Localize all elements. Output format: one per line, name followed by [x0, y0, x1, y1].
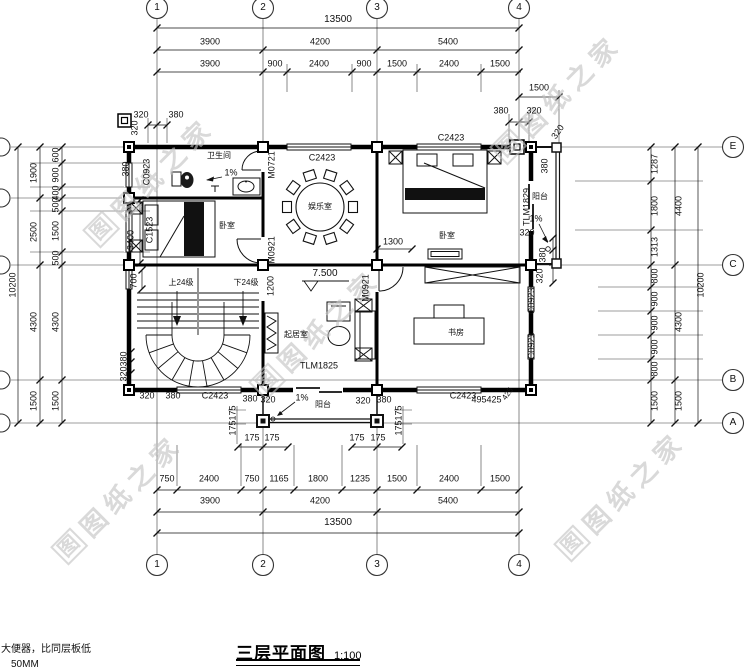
- dim-label: 320: [526, 107, 541, 116]
- dim-label: 425: [486, 396, 501, 405]
- dim-label: 175: [370, 434, 385, 443]
- dim-label: 380: [541, 158, 550, 173]
- grid-bubble-label: 3: [374, 560, 380, 570]
- door-tag: M0921: [268, 236, 277, 264]
- dim-label: 1500: [52, 391, 61, 411]
- dim-label: 900: [651, 291, 660, 306]
- dim-label: 4200: [310, 38, 330, 47]
- dim-label: 380: [376, 396, 391, 405]
- dim-label: 600: [52, 147, 61, 162]
- dim-label: 4400: [675, 196, 684, 216]
- dim-label: 900: [52, 167, 61, 182]
- dim-label: 175: [349, 434, 364, 443]
- dim-label: 1500: [529, 84, 549, 93]
- dim-label: 380: [120, 351, 129, 366]
- room-label-balcony-east: 阳台: [532, 193, 548, 201]
- dim-label: 1500: [30, 391, 39, 411]
- dim-label: 320: [260, 396, 275, 405]
- dim-label: 380: [493, 107, 508, 116]
- dim-label: 1200: [267, 276, 276, 296]
- dim-label: 380: [122, 161, 131, 176]
- grid-bubble-label: A: [730, 418, 737, 428]
- room-label-bathroom: 卫生间: [207, 152, 231, 160]
- dim-label: 1500: [52, 221, 61, 241]
- room-label-bedroom-west: 卧室: [219, 222, 235, 230]
- dim-label: 1800: [651, 196, 660, 216]
- dim-label: 1900: [30, 163, 39, 183]
- dim-label: 3900: [200, 497, 220, 506]
- dim-label: 380: [168, 111, 183, 120]
- dim-label: 1500: [387, 475, 407, 484]
- dim-label: 3900: [200, 60, 220, 69]
- dim-label: 900: [267, 60, 282, 69]
- dim-label: 900: [651, 339, 660, 354]
- toilet-icon: [181, 172, 194, 188]
- dim-label: 320: [131, 120, 140, 135]
- door-tag: M0921: [362, 274, 371, 302]
- grid-bubble-label: 4: [516, 3, 522, 13]
- dim-label: 2400: [439, 475, 459, 484]
- slope-label: 1%: [295, 394, 308, 403]
- door-tag: TLM1825: [300, 362, 338, 371]
- dim-label: 750: [244, 475, 259, 484]
- dim-label: 1287: [651, 154, 660, 174]
- grid-bubble-label: 3: [374, 3, 380, 13]
- window-tag: C2423: [450, 392, 477, 401]
- dim-label: 320: [536, 268, 545, 283]
- dim-overall-left: 10200: [9, 272, 18, 297]
- dim-label: 1500: [490, 475, 510, 484]
- window-tag: C2423: [202, 392, 229, 401]
- dim-label: 175: [395, 405, 404, 420]
- dim-label: 175: [264, 434, 279, 443]
- dim-label: 900: [356, 60, 371, 69]
- dim-label: 175: [229, 405, 238, 420]
- dim-label: 500: [52, 250, 61, 265]
- dim-label: 900: [651, 315, 660, 330]
- room-label-bedroom-east: 卧室: [439, 232, 455, 240]
- dim-label: 4300: [52, 312, 61, 332]
- dim-overall-right: 10200: [697, 272, 706, 297]
- grid-bubble-label: 1: [154, 560, 160, 570]
- slope-label: 1%: [224, 169, 237, 178]
- room-label-living: 起居室: [284, 331, 308, 339]
- study-desk: [414, 267, 520, 344]
- room-label-recreation: 娱乐室: [308, 203, 332, 211]
- dim-label: 1500: [490, 60, 510, 69]
- dim-label: 175: [244, 434, 259, 443]
- dim-label: 2400: [199, 475, 219, 484]
- dim-overall-bottom: 13500: [324, 518, 352, 528]
- room-label-balcony-south: 阳台: [315, 401, 331, 409]
- dim-label: 320: [120, 366, 129, 381]
- dim-label: 1500: [675, 391, 684, 411]
- bathroom-fixtures: [172, 172, 260, 195]
- dim-label: 320: [133, 111, 148, 120]
- dim-label: 800: [651, 361, 660, 376]
- dim-label: 2400: [309, 60, 329, 69]
- door-tag: TLM1829: [523, 188, 532, 226]
- grid-bubble-label: 2: [260, 560, 266, 570]
- dim-label: 2500: [30, 222, 39, 242]
- note-toilet: 大便器，比同层板低: [1, 640, 91, 655]
- note-50mm: 50MM: [11, 659, 39, 669]
- dim-label: 380: [242, 395, 257, 404]
- dim-label: 4300: [675, 312, 684, 332]
- dim-label: 3900: [200, 38, 220, 47]
- dim-label: 1165: [269, 475, 288, 484]
- title-underline: [236, 659, 360, 666]
- dim-label: 1235: [350, 475, 370, 484]
- dim-label: 320: [355, 397, 370, 406]
- window-tag: C2423: [309, 154, 336, 163]
- window-tag: C0923: [528, 333, 537, 360]
- dim-label: 4200: [310, 497, 330, 506]
- dim-label: 320: [139, 392, 154, 401]
- window-tag: C2423: [438, 134, 465, 143]
- dim-label: 700: [130, 273, 139, 288]
- room-label-study: 书房: [448, 329, 464, 337]
- grid-bubble-label: 2: [260, 3, 266, 13]
- dim-label: 380: [539, 247, 548, 262]
- dim-label: 800: [651, 268, 660, 283]
- dim-label: 500: [52, 197, 61, 212]
- dim-label: 750: [159, 475, 174, 484]
- dim-label: 5400: [438, 38, 458, 47]
- dim-label: 2400: [439, 60, 459, 69]
- window-tag: C1523: [146, 217, 155, 244]
- level-label: 7.500: [312, 269, 337, 279]
- grid-bubble-label: 4: [516, 560, 522, 570]
- dim-label: 380: [165, 392, 180, 401]
- grid-bubble-label: C: [729, 260, 736, 270]
- dim-label: 4300: [30, 312, 39, 332]
- dim-label: 1500: [651, 391, 660, 411]
- door-tag: M0721: [268, 151, 277, 179]
- window-tag: C0923: [143, 159, 152, 186]
- dim-label: 1300: [383, 238, 403, 247]
- dim-label: 175: [395, 420, 404, 435]
- dim-label: 1500: [387, 60, 407, 69]
- dim-label: 1313: [651, 237, 660, 257]
- dim-label: 5400: [438, 497, 458, 506]
- stair-down-label: 下24级: [234, 279, 259, 287]
- stair-up-label: 上24级: [169, 279, 194, 287]
- dim-label: 3400: [127, 230, 136, 250]
- dim-label: 1800: [308, 475, 328, 484]
- dim-overall-top: 13500: [324, 15, 352, 25]
- dim-label: 175: [229, 420, 238, 435]
- dim-label: 320: [519, 229, 534, 238]
- grid-bubble-label: 1: [154, 3, 160, 13]
- floorplan-sheet: 1350039004200540039009002400900150024001…: [0, 0, 750, 669]
- window-tag: C0923: [528, 288, 537, 315]
- bed-east: [389, 150, 501, 259]
- grid-bubble-label: E: [730, 142, 737, 152]
- grid-bubble-label: B: [730, 375, 737, 385]
